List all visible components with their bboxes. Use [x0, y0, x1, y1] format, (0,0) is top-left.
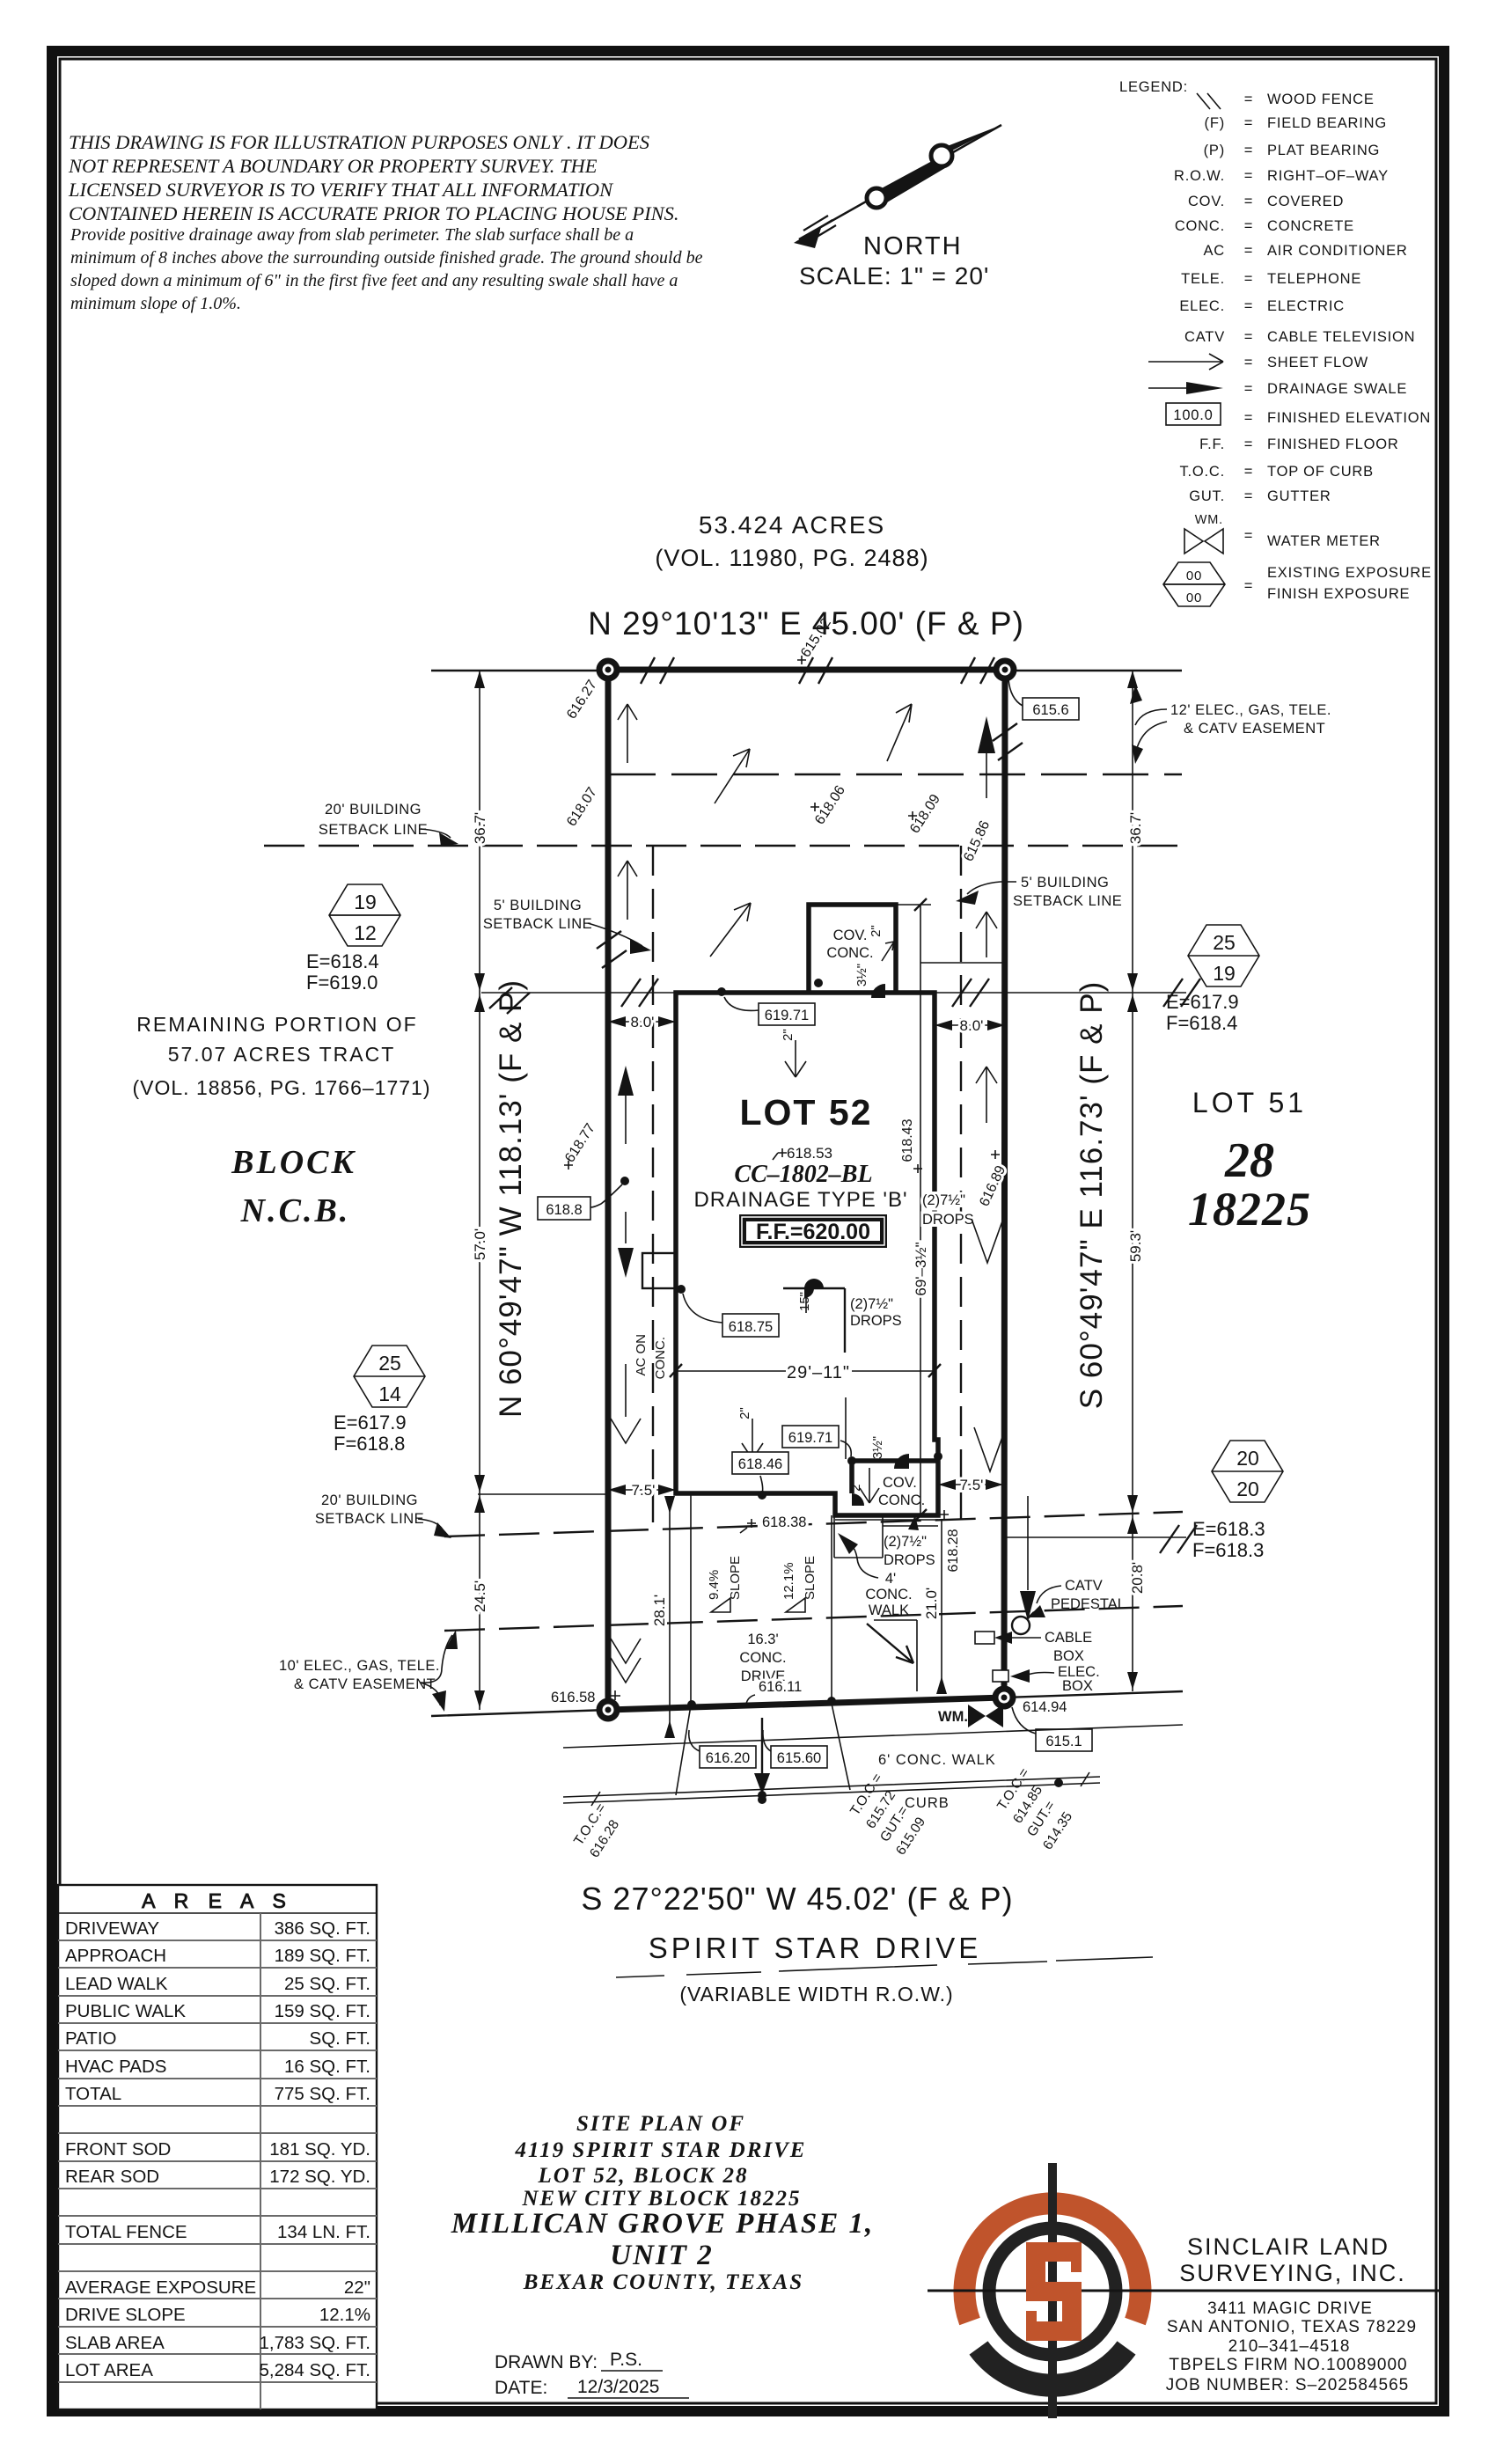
svg-text:ELECTRIC: ELECTRIC: [1267, 298, 1345, 314]
svg-text:8.0': 8.0': [631, 1014, 655, 1030]
svg-text:F=619.0: F=619.0: [306, 972, 378, 994]
svg-text:210–341–4518: 210–341–4518: [1228, 2337, 1351, 2356]
svg-text:12/3/2025: 12/3/2025: [577, 2377, 659, 2397]
svg-text:36.7': 36.7': [472, 812, 488, 844]
svg-text:Provide positive drainage away: Provide positive drainage away from slab…: [70, 225, 634, 245]
svg-text:SETBACK LINE: SETBACK LINE: [319, 822, 428, 838]
svg-text:JOB NUMBER: S–202584565: JOB NUMBER: S–202584565: [1166, 2376, 1409, 2394]
svg-text:775 SQ. FT.: 775 SQ. FT.: [275, 2084, 370, 2104]
svg-text:618.28: 618.28: [946, 1529, 961, 1572]
svg-text:5' BUILDING: 5' BUILDING: [494, 898, 582, 913]
svg-text:(F): (F): [1205, 115, 1225, 131]
svg-text:NEW CITY BLOCK 18225: NEW CITY BLOCK 18225: [521, 2187, 801, 2211]
svg-text:F.F.: F.F.: [1199, 436, 1225, 452]
svg-text:N.C.B.: N.C.B.: [240, 1192, 351, 1229]
svg-text:& CATV EASEMENT: & CATV EASEMENT: [294, 1676, 436, 1692]
svg-text:=: =: [1244, 115, 1253, 131]
svg-text:20: 20: [1236, 1447, 1259, 1470]
svg-text:minimum of 8 inches above the: minimum of 8 inches above the surroundin…: [70, 248, 703, 268]
svg-text:REAR SOD: REAR SOD: [65, 2167, 159, 2187]
svg-text:20.8': 20.8': [1129, 1562, 1146, 1594]
svg-text:12: 12: [354, 921, 377, 944]
svg-text:SQ. FT.: SQ. FT.: [310, 2028, 370, 2049]
svg-text:618.38: 618.38: [762, 1514, 806, 1530]
svg-text:57.0': 57.0': [472, 1228, 488, 1260]
svg-text:DRAWN BY:: DRAWN BY:: [495, 2352, 598, 2372]
svg-text:DROPS: DROPS: [922, 1212, 974, 1228]
svg-text:S 27°22'50" W 45.02' (F &: S 27°22'50" W 45.02' (F & P): [581, 1881, 1013, 1917]
svg-text:HVAC PADS: HVAC PADS: [65, 2057, 166, 2077]
svg-text:DATE:: DATE:: [495, 2378, 547, 2398]
svg-text:=: =: [1244, 436, 1253, 452]
svg-text:COV.: COV.: [1188, 194, 1225, 209]
svg-text:5,284 SQ. FT.: 5,284 SQ. FT.: [260, 2360, 370, 2380]
svg-text:618.43: 618.43: [900, 1118, 915, 1162]
svg-text:(VOL. 11980, PG. 2488): (VOL. 11980, PG. 2488): [655, 545, 928, 571]
svg-text:& CATV EASEMENT: & CATV EASEMENT: [1184, 721, 1325, 737]
svg-text:DRAINAGE TYPE 'B': DRAINAGE TYPE 'B': [693, 1188, 907, 1212]
svg-text:29'–11": 29'–11": [787, 1363, 850, 1382]
svg-text:TOTAL FENCE: TOTAL FENCE: [65, 2222, 187, 2242]
svg-text:COVERED: COVERED: [1267, 194, 1344, 209]
svg-text:=: =: [1244, 92, 1253, 107]
svg-text:BLOCK: BLOCK: [231, 1144, 356, 1181]
svg-text:CONC.: CONC.: [878, 1492, 925, 1508]
svg-text:F=618.4: F=618.4: [1166, 1012, 1237, 1034]
svg-text:EXISTING EXPOSURE: EXISTING EXPOSURE: [1267, 565, 1432, 581]
svg-text:CATV: CATV: [1184, 329, 1225, 345]
svg-text:N 29°10'13" E 45.00' (F &: N 29°10'13" E 45.00' (F & P): [588, 605, 1024, 642]
svg-text:WM.: WM.: [1195, 513, 1223, 527]
svg-text:=: =: [1244, 528, 1253, 544]
svg-text:RIGHT–OF–WAY: RIGHT–OF–WAY: [1267, 168, 1389, 184]
svg-text:181 SQ. YD.: 181 SQ. YD.: [269, 2139, 370, 2160]
svg-text:DRAINAGE SWALE: DRAINAGE SWALE: [1267, 381, 1407, 397]
svg-text:619.71: 619.71: [788, 1430, 832, 1446]
svg-text:SAN ANTONIO, TEXAS 78229: SAN ANTONIO, TEXAS 78229: [1167, 2318, 1417, 2336]
svg-text:BEXAR COUNTY, TEXAS: BEXAR COUNTY, TEXAS: [523, 2270, 803, 2294]
svg-text:AC: AC: [1203, 243, 1225, 259]
svg-text:20' BUILDING: 20' BUILDING: [325, 802, 422, 818]
svg-text:615.6: 615.6: [1032, 702, 1068, 718]
svg-text:SURVEYING, INC.: SURVEYING, INC.: [1179, 2260, 1406, 2286]
svg-text:19: 19: [1213, 962, 1236, 985]
svg-text:16.3': 16.3': [747, 1632, 778, 1647]
svg-text:172 SQ. YD.: 172 SQ. YD.: [269, 2167, 370, 2187]
svg-text:AVERAGE EXPOSURE: AVERAGE EXPOSURE: [65, 2277, 256, 2298]
svg-text:CONC.: CONC.: [739, 1650, 786, 1666]
svg-text:SLOPE: SLOPE: [728, 1556, 743, 1600]
svg-text:SLAB AREA: SLAB AREA: [65, 2333, 165, 2353]
svg-text:COV.: COV.: [883, 1475, 917, 1491]
svg-text:24.5': 24.5': [472, 1580, 488, 1612]
svg-text:4119 SPIRIT STAR DRIVE: 4119 SPIRIT STAR DRIVE: [515, 2138, 807, 2162]
svg-text:SETBACK LINE: SETBACK LINE: [483, 916, 592, 932]
svg-text:159 SQ. FT.: 159 SQ. FT.: [275, 2001, 370, 2021]
svg-text:618.8: 618.8: [546, 1202, 582, 1218]
svg-text:S 60°49'47" E 116.73' (F &: S 60°49'47" E 116.73' (F & P): [1074, 981, 1109, 1409]
svg-text:2": 2": [781, 1029, 796, 1041]
svg-text:R.O.W.: R.O.W.: [1174, 168, 1225, 184]
svg-text:00: 00: [1186, 590, 1202, 605]
svg-text:=: =: [1244, 218, 1253, 234]
svg-text:P.S.: P.S.: [610, 2350, 642, 2370]
svg-text:SINCLAIR LAND: SINCLAIR LAND: [1187, 2233, 1390, 2260]
svg-text:3½": 3½": [870, 1436, 885, 1459]
svg-text:FINISHED ELEVATION: FINISHED ELEVATION: [1267, 410, 1431, 426]
svg-text:28: 28: [1224, 1133, 1274, 1188]
svg-text:9.4%: 9.4%: [707, 1570, 722, 1600]
svg-text:15": 15": [797, 1292, 812, 1311]
svg-text:5' BUILDING: 5' BUILDING: [1021, 875, 1109, 891]
svg-text:20: 20: [1236, 1478, 1259, 1500]
svg-text:7.5': 7.5': [632, 1482, 656, 1499]
svg-text:FINISH EXPOSURE: FINISH EXPOSURE: [1267, 586, 1410, 602]
svg-text:=: =: [1244, 329, 1253, 345]
svg-text:616.11: 616.11: [759, 1679, 802, 1695]
svg-text:SITE PLAN OF: SITE PLAN OF: [576, 2112, 745, 2136]
svg-text:PLAT BEARING: PLAT BEARING: [1267, 143, 1380, 158]
svg-text:NOT REPRESENT A BOUNDARY OR PR: NOT REPRESENT A BOUNDARY OR PROPERTY SUR…: [68, 155, 598, 177]
svg-text:SLOPE: SLOPE: [803, 1556, 818, 1600]
svg-text:BOX: BOX: [1053, 1648, 1084, 1664]
svg-text:CONC.: CONC.: [865, 1587, 912, 1602]
svg-text:=: =: [1244, 355, 1253, 370]
svg-text:=: =: [1244, 243, 1253, 259]
svg-text:18225: 18225: [1188, 1183, 1311, 1236]
svg-text:LOT 51: LOT 51: [1192, 1087, 1307, 1118]
svg-text:THIS DRAWING IS FOR ILLUSTRATI: THIS DRAWING IS FOR ILLUSTRATION PURPOSE…: [69, 131, 649, 153]
svg-text:PATIO: PATIO: [65, 2028, 116, 2049]
svg-text:DRIVEWAY: DRIVEWAY: [65, 1918, 159, 1939]
svg-text:189 SQ. FT.: 189 SQ. FT.: [275, 1946, 370, 1966]
svg-text:19: 19: [354, 891, 377, 913]
svg-text:MILLICAN GROVE PHASE 1,: MILLICAN GROVE PHASE 1,: [451, 2208, 875, 2240]
svg-text:TOP OF CURB: TOP OF CURB: [1267, 464, 1374, 480]
svg-text:GUTTER: GUTTER: [1267, 488, 1331, 504]
svg-text:=: =: [1244, 271, 1253, 287]
svg-text:12.1%: 12.1%: [781, 1562, 796, 1600]
svg-text:69'–3½": 69'–3½": [913, 1242, 929, 1295]
svg-text:LOT 52, BLOCK 28: LOT 52, BLOCK 28: [538, 2164, 749, 2188]
svg-text:(VARIABLE WIDTH R.O.W.): (VARIABLE WIDTH R.O.W.): [679, 1983, 953, 2006]
svg-text:FRONT SOD: FRONT SOD: [65, 2139, 171, 2160]
svg-text:FIELD BEARING: FIELD BEARING: [1267, 115, 1387, 131]
svg-text:25: 25: [1213, 931, 1236, 954]
svg-text:2": 2": [869, 925, 884, 937]
svg-text:=: =: [1244, 464, 1253, 480]
svg-text:PEDESTAL: PEDESTAL: [1051, 1596, 1126, 1612]
svg-text:615.1: 615.1: [1045, 1734, 1082, 1749]
svg-text:618.46: 618.46: [738, 1456, 782, 1472]
svg-text:E=617.9: E=617.9: [1166, 991, 1239, 1013]
svg-text:10' ELEC., GAS, TELE.: 10' ELEC., GAS, TELE.: [279, 1658, 440, 1674]
svg-text:sloped down a minimum of 6" in: sloped down a minimum of 6" in the first…: [70, 271, 678, 290]
svg-text:F=618.3: F=618.3: [1192, 1539, 1264, 1561]
svg-text:8.0': 8.0': [960, 1017, 984, 1034]
svg-text:618.53: 618.53: [787, 1145, 832, 1162]
svg-text:=: =: [1244, 194, 1253, 209]
svg-text:DRIVE SLOPE: DRIVE SLOPE: [65, 2305, 186, 2325]
svg-text:=: =: [1244, 298, 1253, 314]
svg-text:(2)7½": (2)7½": [922, 1192, 965, 1208]
svg-text:(2)7½": (2)7½": [850, 1296, 893, 1312]
svg-text:SHEET FLOW: SHEET FLOW: [1267, 355, 1368, 370]
svg-text:3½": 3½": [854, 964, 869, 986]
svg-text:14: 14: [378, 1382, 401, 1405]
svg-text:(2)7½": (2)7½": [884, 1534, 927, 1550]
svg-text:SETBACK LINE: SETBACK LINE: [315, 1511, 424, 1527]
svg-text:E=618.4: E=618.4: [306, 950, 379, 972]
svg-text:CURB: CURB: [905, 1795, 950, 1811]
svg-text:SPIRIT STAR DRIVE: SPIRIT STAR DRIVE: [649, 1932, 982, 1964]
svg-text:59.3': 59.3': [1127, 1230, 1144, 1262]
svg-text:GUT.: GUT.: [1189, 488, 1225, 504]
svg-text:3411 MAGIC DRIVE: 3411 MAGIC DRIVE: [1207, 2299, 1373, 2318]
svg-text:386 SQ. FT.: 386 SQ. FT.: [275, 1918, 370, 1939]
svg-text:16 SQ. FT.: 16 SQ. FT.: [284, 2057, 370, 2077]
svg-text:AIR CONDITIONER: AIR CONDITIONER: [1267, 243, 1408, 259]
svg-text:619.71: 619.71: [765, 1008, 809, 1023]
svg-text:WATER METER: WATER METER: [1267, 533, 1381, 549]
svg-text:4': 4': [885, 1571, 896, 1587]
svg-text:CONCRETE: CONCRETE: [1267, 218, 1354, 234]
svg-text:LICENSED SURVEYOR IS TO VERIFY: LICENSED SURVEYOR IS TO VERIFY THAT ALL …: [68, 179, 614, 201]
svg-text:DROPS: DROPS: [884, 1552, 935, 1568]
svg-text:TOTAL: TOTAL: [65, 2084, 121, 2104]
svg-text:2": 2": [737, 1407, 752, 1419]
svg-text:T.O.C.: T.O.C.: [1179, 464, 1225, 480]
svg-text:(P): (P): [1204, 143, 1225, 158]
svg-text:F=618.8: F=618.8: [334, 1433, 405, 1455]
svg-text:E=618.3: E=618.3: [1192, 1518, 1265, 1540]
svg-text:12' ELEC., GAS, TELE.: 12' ELEC., GAS, TELE.: [1170, 702, 1331, 718]
svg-text:28.1': 28.1': [651, 1595, 668, 1626]
svg-text:CATV: CATV: [1065, 1578, 1103, 1594]
svg-text:NORTH: NORTH: [863, 232, 963, 260]
svg-text:REMAINING PORTION OF: REMAINING PORTION OF: [136, 1013, 417, 1036]
svg-text:WALK: WALK: [869, 1602, 909, 1618]
svg-text:616.20: 616.20: [706, 1750, 750, 1766]
svg-text:SCALE: 1" = 20': SCALE: 1" = 20': [799, 262, 989, 290]
svg-text:57.07 ACRES TRACT: 57.07 ACRES TRACT: [168, 1043, 396, 1066]
svg-text:F.F.=620.00: F.F.=620.00: [756, 1220, 870, 1244]
svg-text:COV.: COV.: [833, 928, 868, 943]
svg-text:CONTAINED HEREIN IS ACCURATE P: CONTAINED HEREIN IS ACCURATE PRIOR TO PL…: [69, 202, 679, 224]
svg-text:=: =: [1244, 578, 1253, 594]
svg-text:minimum slope of 1.0%.: minimum slope of 1.0%.: [70, 294, 241, 313]
svg-text:APPROACH: APPROACH: [65, 1946, 166, 1966]
svg-text:CABLE: CABLE: [1045, 1630, 1092, 1646]
svg-text:SETBACK LINE: SETBACK LINE: [1013, 893, 1122, 909]
svg-text:1,783 SQ. FT.: 1,783 SQ. FT.: [260, 2333, 370, 2353]
svg-text:36.7': 36.7': [1127, 812, 1144, 844]
svg-text:618.75: 618.75: [729, 1319, 773, 1335]
svg-text:DROPS: DROPS: [850, 1313, 902, 1329]
svg-text:WOOD FENCE: WOOD FENCE: [1267, 92, 1375, 107]
svg-text:AC ON: AC ON: [634, 1334, 649, 1376]
svg-text:20' BUILDING: 20' BUILDING: [321, 1492, 418, 1508]
svg-text:E=617.9: E=617.9: [334, 1412, 407, 1434]
svg-text:CONC.: CONC.: [826, 945, 873, 961]
svg-text:ELEC.: ELEC.: [1179, 298, 1225, 314]
svg-text:TELEPHONE: TELEPHONE: [1267, 271, 1361, 287]
svg-text:A R E A S: A R E A S: [142, 1889, 293, 1912]
svg-text:25 SQ. FT.: 25 SQ. FT.: [284, 1974, 370, 1994]
svg-text:LEGEND:: LEGEND:: [1119, 79, 1188, 95]
svg-text:=: =: [1244, 143, 1253, 158]
svg-text:PUBLIC WALK: PUBLIC WALK: [65, 2001, 186, 2021]
svg-text:TELE.: TELE.: [1181, 271, 1225, 287]
svg-text:6' CONC. WALK: 6' CONC. WALK: [878, 1752, 996, 1768]
svg-text:(VOL. 18856, PG. 1766–1771): (VOL. 18856, PG. 1766–1771): [133, 1076, 431, 1099]
svg-text:=: =: [1244, 168, 1253, 184]
svg-text:UNIT 2: UNIT 2: [610, 2240, 713, 2271]
svg-text:616.58: 616.58: [551, 1690, 595, 1705]
svg-text:=: =: [1244, 488, 1253, 504]
svg-text:22": 22": [344, 2277, 370, 2298]
svg-text:FINISHED FLOOR: FINISHED FLOOR: [1267, 436, 1399, 452]
svg-text:CABLE TELEVISION: CABLE TELEVISION: [1267, 329, 1415, 345]
svg-text:21.0': 21.0': [923, 1588, 940, 1619]
svg-text:LEAD WALK: LEAD WALK: [65, 1974, 168, 1994]
svg-text:LOT AREA: LOT AREA: [65, 2360, 153, 2380]
svg-text:WM.: WM.: [938, 1709, 968, 1725]
svg-text:614.94: 614.94: [1023, 1699, 1067, 1715]
svg-text:=: =: [1244, 381, 1253, 397]
svg-text:100.0: 100.0: [1173, 407, 1213, 423]
svg-text:00: 00: [1186, 568, 1202, 583]
svg-text:TBPELS FIRM NO.10089000: TBPELS FIRM NO.10089000: [1169, 2356, 1407, 2374]
svg-text:CONC.: CONC.: [653, 1337, 668, 1379]
svg-text:CONC.: CONC.: [1175, 218, 1225, 234]
svg-text:=: =: [1244, 410, 1253, 426]
svg-text:LOT 52: LOT 52: [740, 1092, 873, 1133]
svg-text:134 LN. FT.: 134 LN. FT.: [277, 2222, 370, 2242]
svg-text:CC–1802–BL: CC–1802–BL: [734, 1161, 872, 1188]
svg-text:25: 25: [378, 1352, 401, 1375]
svg-text:7.5': 7.5': [960, 1477, 984, 1493]
svg-text:12.1%: 12.1%: [319, 2305, 370, 2325]
svg-text:53.424 ACRES: 53.424 ACRES: [699, 511, 885, 539]
svg-text:BOX: BOX: [1062, 1678, 1093, 1694]
svg-text:N 60°49'47" W 118.13' (F &: N 60°49'47" W 118.13' (F & P): [494, 979, 528, 1418]
svg-text:615.60: 615.60: [777, 1750, 821, 1766]
